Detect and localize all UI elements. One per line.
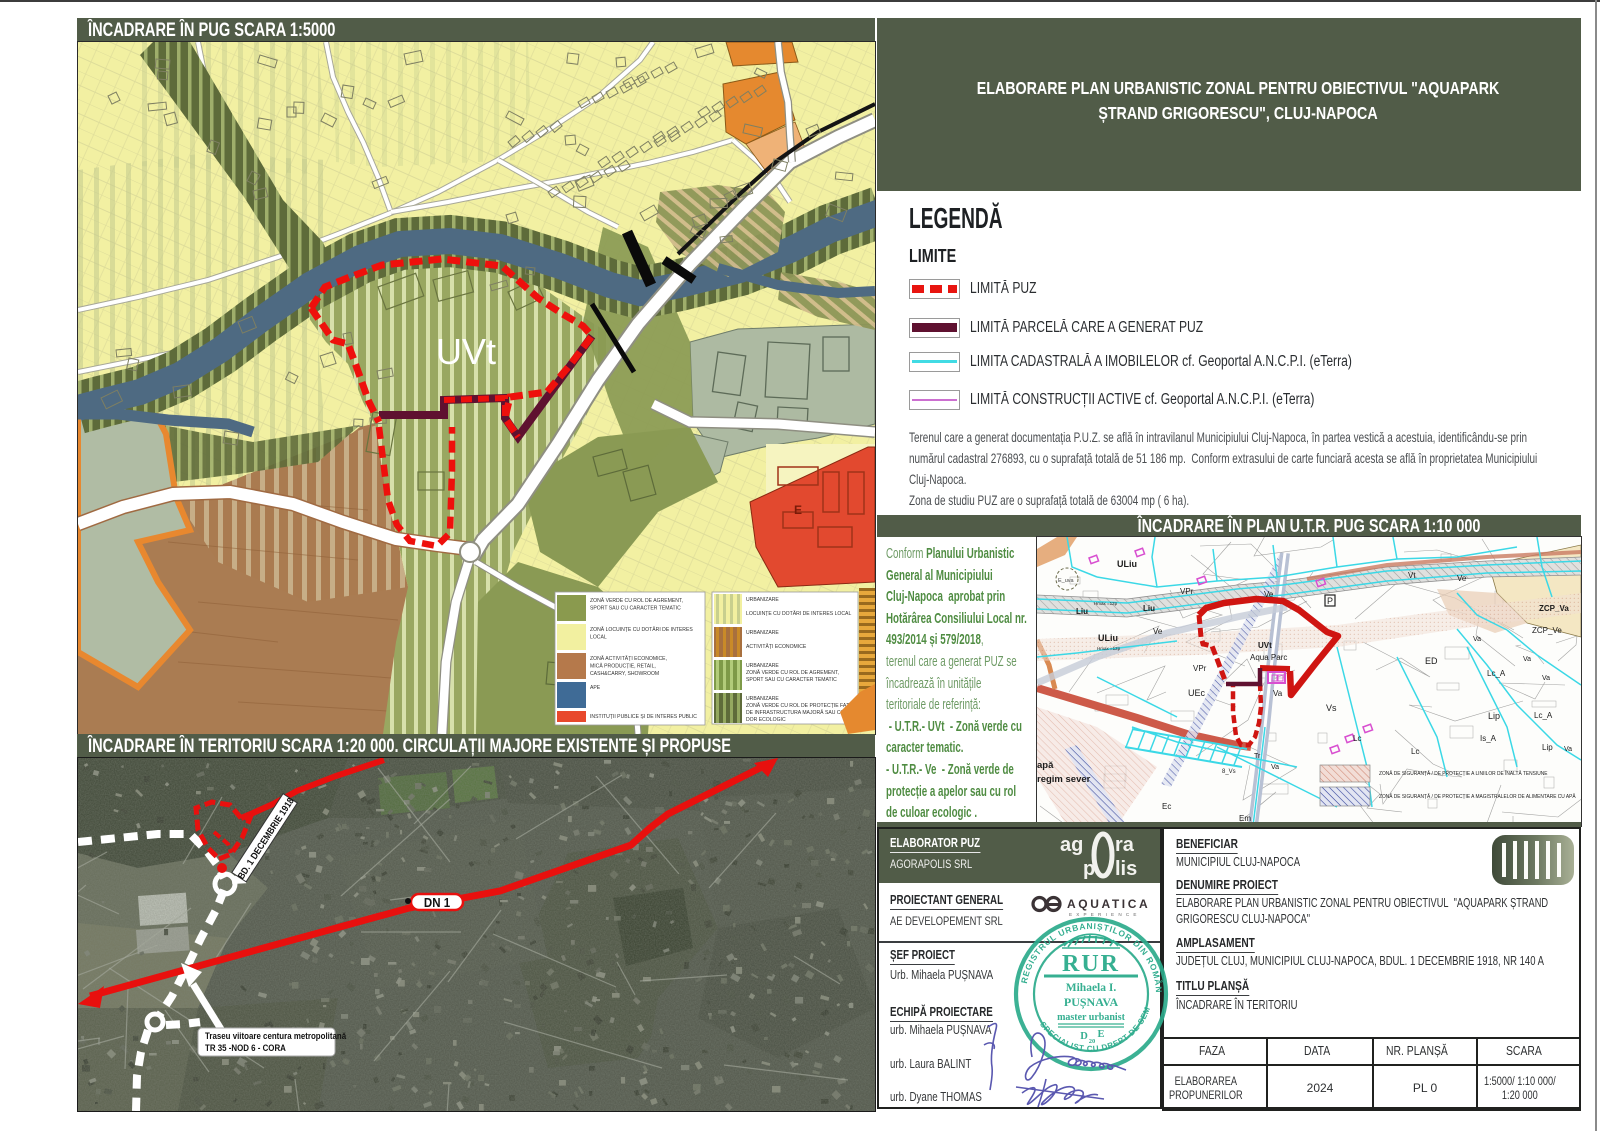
- svg-text:VPr: VPr: [1180, 587, 1194, 596]
- svg-text:DN 1: DN 1: [424, 896, 450, 911]
- svg-text:VPr: VPr: [1193, 664, 1207, 673]
- svg-text:Tr: Tr: [1254, 753, 1261, 760]
- svg-text:Is_A: Is_A: [1480, 734, 1497, 743]
- svg-text:ZONĂ DE SIGURANȚĂ / DE PROTECȚ: ZONĂ DE SIGURANȚĂ / DE PROTECȚIE A MAGIS…: [1379, 793, 1576, 800]
- svg-text:ULiu: ULiu: [1098, 633, 1118, 643]
- svg-text:ZCP_Ve: ZCP_Ve: [1532, 626, 1562, 635]
- svg-text:Va: Va: [1523, 656, 1531, 663]
- svg-text:APE: APE: [590, 685, 601, 691]
- svg-text:DOR ECOLOGIC: DOR ECOLOGIC: [746, 717, 786, 723]
- svg-text:Lc: Lc: [1353, 734, 1361, 743]
- svg-text:ZONĂ ACTIVITĂȚI ECONOMICE,: ZONĂ ACTIVITĂȚI ECONOMICE,: [590, 655, 667, 662]
- svg-text:Liu: Liu: [1076, 607, 1088, 616]
- svg-text:URBANIZARE: URBANIZARE: [746, 630, 779, 636]
- svg-text:Lip: Lip: [1542, 743, 1553, 752]
- svg-text:ra: ra: [1115, 834, 1135, 856]
- svg-text:Ve: Ve: [1153, 627, 1163, 636]
- svg-text:ZCP_Va: ZCP_Va: [1539, 604, 1569, 613]
- svg-text:Ec: Ec: [1162, 802, 1171, 811]
- svg-text:LOCUINȚE CU DOTĂRI DE INTERES: LOCUINȚE CU DOTĂRI DE INTERES LOCAL: [746, 610, 851, 617]
- svg-text:DE INFRASTRUCTURA MAJORĂ SAU C: DE INFRASTRUCTURA MAJORĂ SAU CORI-: [746, 709, 852, 716]
- svg-text:ZONĂ VERDE CU ROL DE AGREMENT,: ZONĂ VERDE CU ROL DE AGREMENT,: [746, 669, 839, 676]
- svg-text:CASH&CARRY, SHOWROOM: CASH&CARRY, SHOWROOM: [590, 671, 659, 677]
- svg-text:apă: apă: [1037, 760, 1054, 771]
- svg-text:ag: ag: [1060, 834, 1083, 856]
- svg-text:ACTIVITĂȚI ECONOMICE: ACTIVITĂȚI ECONOMICE: [746, 643, 807, 650]
- svg-text:Lip: Lip: [1488, 711, 1500, 721]
- svg-text:P: P: [1327, 596, 1333, 606]
- svg-text:ULiu: ULiu: [1117, 559, 1137, 569]
- svg-text:RUR: RUR: [1062, 951, 1120, 977]
- svg-text:UVt: UVt: [436, 331, 496, 372]
- svg-text:E: E: [794, 503, 802, 517]
- svg-text:Mihaela I.: Mihaela I.: [1066, 982, 1117, 994]
- svg-text:Lc_A: Lc_A: [1487, 669, 1506, 678]
- svg-text:Liu: Liu: [1143, 604, 1155, 613]
- svg-text:regim sever: regim sever: [1037, 774, 1091, 785]
- svg-text:Ve: Ve: [1264, 590, 1274, 599]
- svg-text:TR 35 -NOD 6 - CORA: TR 35 -NOD 6 - CORA: [205, 1043, 286, 1054]
- svg-text:Lc_A: Lc_A: [1534, 711, 1553, 720]
- svg-text:Vt: Vt: [1408, 571, 1416, 580]
- svg-text:MICĂ PRODUCȚIE, RETAIL,: MICĂ PRODUCȚIE, RETAIL,: [590, 663, 656, 670]
- svg-text:Traseu viitoare centura metrop: Traseu viitoare centura metropolitană: [205, 1031, 346, 1042]
- svg-text:Va: Va: [1271, 764, 1279, 771]
- svg-text:Va: Va: [1564, 746, 1572, 753]
- svg-text:Vs: Vs: [1326, 703, 1337, 713]
- svg-text:URBANIZARE: URBANIZARE: [746, 663, 779, 669]
- svg-text:UEc: UEc: [1188, 688, 1206, 698]
- svg-text:Aqua Parc: Aqua Parc: [1250, 653, 1287, 662]
- svg-text:E_uva: E_uva: [1058, 578, 1075, 584]
- svg-text:Va: Va: [1273, 689, 1283, 698]
- svg-text:lis: lis: [1115, 858, 1137, 880]
- svg-text:ZONĂ LOCUINȚE CU DOTĂRI DE INT: ZONĂ LOCUINȚE CU DOTĂRI DE INTERES: [590, 626, 693, 633]
- svg-text:Va: Va: [1473, 636, 1481, 643]
- svg-text:LOCAL: LOCAL: [590, 635, 607, 641]
- svg-text:ZONĂ DE SIGURANȚĂ / DE PROTECȚ: ZONĂ DE SIGURANȚĂ / DE PROTECȚIE A LINII…: [1379, 770, 1548, 777]
- svg-text:AQUATICA: AQUATICA: [1067, 897, 1150, 911]
- svg-text:SPORT SAU CU CARACTER TEMATIC: SPORT SAU CU CARACTER TEMATIC: [590, 606, 681, 612]
- svg-text:INSTITUȚII PUBLICE ȘI DE INTER: INSTITUȚII PUBLICE ȘI DE INTERES PUBLIC: [590, 714, 697, 720]
- svg-text:Lc: Lc: [1411, 747, 1419, 756]
- svg-text:URBANIZARE: URBANIZARE: [746, 696, 779, 702]
- svg-text:SPORT SAU CU CARACTER TEMATIC: SPORT SAU CU CARACTER TEMATIC: [746, 677, 837, 683]
- svg-text:ZONĂ VERDE CU ROL DE PROTECȚIE: ZONĂ VERDE CU ROL DE PROTECȚIE FAȚĂ: [746, 702, 853, 709]
- svg-text:UVt: UVt: [1258, 641, 1272, 650]
- svg-text:PUȘNAVA: PUȘNAVA: [1064, 995, 1119, 1010]
- svg-text:Ve: Ve: [1457, 574, 1467, 583]
- svg-text:Hmax =12p: Hmax =12p: [1097, 646, 1121, 651]
- svg-text:Va: Va: [1542, 675, 1550, 682]
- svg-text:Hmax =12p: Hmax =12p: [1094, 601, 1118, 606]
- svg-text:ED: ED: [1425, 656, 1438, 666]
- svg-text:8_Vs: 8_Vs: [1222, 769, 1236, 775]
- svg-text:ZONĂ VERDE CU ROL DE AGREMENT,: ZONĂ VERDE CU ROL DE AGREMENT,: [590, 597, 683, 604]
- svg-text:URBANIZARE: URBANIZARE: [746, 597, 779, 603]
